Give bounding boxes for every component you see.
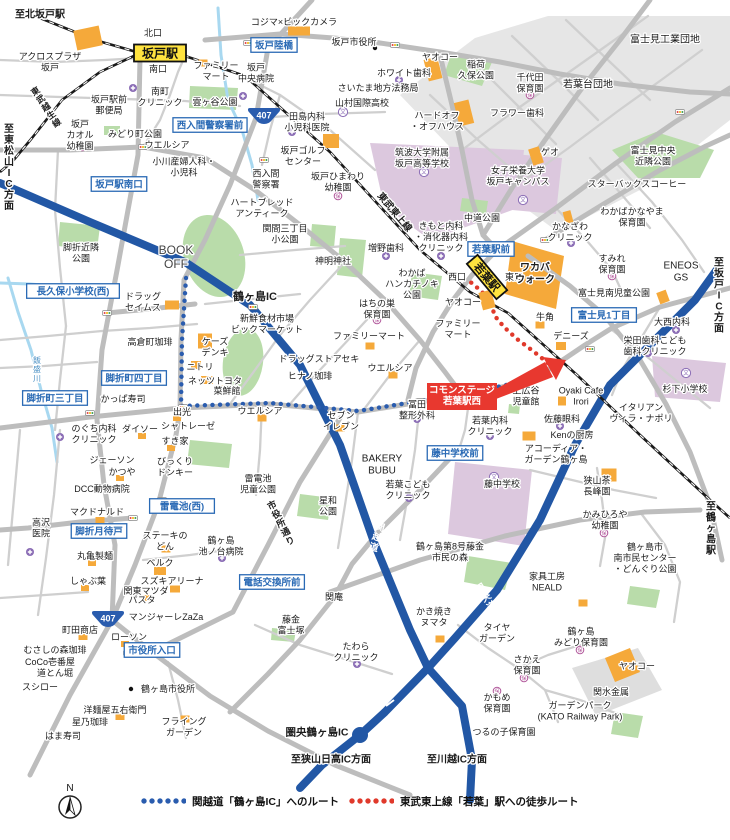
map-label: マンジャーレZaZa [129,612,204,622]
intersection-label: 電話交換所前 [243,576,301,588]
map-label: 町田商店 [62,624,98,635]
nursery-icon-glyph: 保 [521,675,526,682]
map-label: 西口 [448,272,466,282]
map-label: 千代田保育園 [516,73,543,94]
map-label: ガーデンパーク(KATO Railway Park) [538,700,623,722]
building [556,342,566,350]
map-label: 道とん堀 [37,667,73,678]
station-label-group: 坂戸駅 [134,45,186,62]
map-label: ウエルシア [237,406,282,416]
traffic-light-dot [394,44,396,46]
nursery-icon-glyph: 保 [601,530,606,537]
traffic-light-dot [134,517,136,519]
legend-route-walk: 東武東上線「若葉」駅への徒歩ルート [348,794,579,808]
map-label: 丸亀製麺 [77,550,113,561]
map-label: かき焼きヌマタ [416,607,452,628]
map-label: フラワー歯科 [490,107,544,118]
map-label: セブンイレブン [323,410,359,432]
compass-north-label: N [56,784,84,794]
intersection-label: 坂戸駅南口 [95,178,143,190]
building [536,322,545,329]
map-label: 牛角 [536,311,554,322]
map-label: 新鮮食材市場ビックマーケット [231,313,303,335]
intersection-label: 藤中学校前 [431,447,479,459]
intersection-label: 市役所入口 [128,644,176,656]
map-label: 女子栄養大学坂戸キャンパス [486,165,549,187]
map-label: ウエルシア [367,363,412,373]
traffic-light-dot [392,44,394,46]
intersection-label: 富士見1丁目 [578,309,631,321]
traffic-light-dot [245,42,247,44]
road [0,331,102,340]
intersection-label: 長久保小学校(西) [37,285,110,297]
traffic-light-dot [681,111,683,113]
map-label: ホワイト歯科 [377,67,431,78]
map-label: アコーディア・ガーデン鶴ヶ島 [524,443,587,465]
map-label: 雲ヶ谷公園 [192,97,237,107]
map-label: かなざわクリニック [547,221,592,243]
map-label: 中道公園 [464,212,500,223]
map-label: 大西内科 [654,316,690,327]
map-label: ゲオ [541,146,559,157]
route-shield-number: 407 [256,111,271,121]
map-canvas: 文文文文文保保保保保保保保保407407至北坂戸駅北口南口アクロスプラザ坂戸ファ… [0,0,730,840]
map-label: ウエルシア [144,140,189,150]
map-label: 鶴ヶ島市役所 [141,683,195,694]
station-label: 坂戸駅 [142,45,179,60]
map-label: すき家 [161,435,188,446]
traffic-light-dot [261,159,263,161]
map-label: 坂戸ゴルフセンター [280,145,325,167]
map-label: Kenの厨房 [550,429,593,440]
map-label: 田島内科小児科医院 [284,111,329,133]
map-label: ネッツトヨタ [188,376,242,386]
legend-route-walk-label: 東武東上線「若葉」駅への徒歩ルート [400,794,579,809]
map-root: 文文文文文保保保保保保保保保407407至北坂戸駅北口南口アクロスプラザ坂戸ファ… [0,0,730,840]
map-label: 鶴ヶ島池ノ台病院 [198,535,243,557]
map-label: ベルク [146,558,173,568]
map-label: 飯盛川 [33,355,41,383]
map-label: かつや [108,467,135,477]
road [8,430,20,565]
map-label: CoCo壱番屋 [25,656,75,667]
map-label: スシロー [22,682,58,692]
route-dots-blue-icon [140,797,186,805]
map-label: ケーズデンキ [201,336,228,358]
map-label: 南町クリニック [137,86,182,108]
map-label: 鶴ヶ島みどり保育園 [554,626,608,648]
traffic-light-dot [587,348,589,350]
traffic-light-dot [263,159,265,161]
building [288,27,310,36]
traffic-light-dot [677,111,679,113]
map-label: 洋麺屋五右衛門 [83,704,146,715]
map-label: ヤオコー [619,661,655,671]
map-label: 藤中学校 [484,478,520,489]
school-icon-glyph: 文 [340,108,346,116]
map-label: さいたま地方法務局 [338,82,419,93]
map-label: むさしの森珈琲 [23,644,86,655]
area [187,440,232,468]
map-label: きもと内科・消化器内科クリニック [414,220,468,253]
school-icon-glyph: 文 [421,168,427,176]
traffic-light-dot [542,239,544,241]
map-label: 若葉内科クリニック [467,415,512,437]
map-label: マクドナルド [70,507,124,517]
intersection-label: 脚折町三丁目 [26,392,83,404]
map-label: 関間三丁目小公園 [262,224,307,245]
traffic-light-dot [254,306,256,308]
map-label: 富士見中央近隣公園 [630,145,675,167]
intersection-label: 西入間警察署前 [177,119,244,131]
map-label: びっくりドンキー [157,457,193,478]
map-label: 菜鮮館 [213,385,240,396]
intersection-label: 雷電池(西) [160,500,204,512]
school-icon-glyph: 文 [683,369,689,377]
map-label: さかえ保育園 [513,655,540,676]
map-label: 佐藤眼科 [544,413,580,424]
map-label: 藤金富士塚 [277,614,304,636]
map-label: すみれ保育園 [598,254,625,275]
map-label: 増野歯科 [368,242,404,253]
building [558,397,566,406]
map-label: 若葉こどもクリニック [385,479,430,501]
map-label: 東武越生線 [28,84,63,129]
map-label: 高沢医院 [32,517,50,539]
traffic-light-dot [589,348,591,350]
traffic-light-dot [591,348,593,350]
building [523,432,536,441]
nursery-icon-glyph: 保 [577,647,582,654]
map-label: 圏央鶴ヶ島IC [286,726,349,739]
map-label: 筑波大学附属坂戸高等学校 [395,147,449,169]
map-label: 至狭山日高IC方面 [291,753,371,766]
traffic-light-dot [91,412,93,414]
map-label: かもめ保育園 [483,693,510,714]
expressway-break-icon [383,694,391,700]
traffic-light-dot [140,146,142,148]
legend-route-expressway-label: 関越道「鶴ヶ島IC」へのルート [192,794,339,809]
road [0,362,97,368]
traffic-light-dot [108,312,110,314]
intersection-label: 坂戸陸橋 [255,39,294,51]
map-label: 関水金属 [593,686,629,697]
route-dots-red-icon [348,797,394,805]
map-label: パスタ [128,595,155,605]
map-label: ドラッグセイムス [125,291,161,313]
map-label: ハートブレッドアンティーク [230,197,293,219]
map-label: みどり町公園 [108,129,162,139]
map-label: イタリアンヴィラ・ナポリ [609,403,672,424]
map-label: 至鶴ヶ島駅 [705,501,717,557]
building [436,636,445,643]
map-label: わかばかなやま保育園 [600,207,663,228]
area [627,586,660,608]
road [55,326,66,430]
map-label: 家具工房NEALD [529,571,565,593]
traffic-light-dot [132,517,134,519]
traffic-light-dot [252,306,254,308]
intersection-label: 脚折月待戸 [75,525,123,537]
map-label: 富士見南児童公園 [578,287,650,298]
map-label: 坂戸カオル幼稚園 [66,119,93,151]
map-label: 小川産婦人科・小児科 [152,156,215,178]
map-label: ニトリ [186,362,213,372]
map-label: デニーズ [553,330,589,341]
nursery-icon-glyph: 保 [335,193,340,200]
traffic-light-dot [130,517,132,519]
map-label: フライングガーデン [161,716,206,738]
map-label: 若葉台団地 [563,78,613,91]
map-label: 狭山茶長峰園 [583,475,610,497]
map-label: 高倉町珈琲 [127,336,172,347]
building [170,586,180,593]
map-label: ジェーソン [89,455,134,465]
map-label: 至川越IC方面 [427,753,487,766]
map-label: シャトレーゼ [161,420,215,431]
map-label: 坂戸市役所 [331,36,376,47]
map-label: 星和公園 [319,496,337,517]
map-label: 坂戸駅前郵便局 [91,94,127,116]
building [73,26,103,51]
map-label: 北口 [144,28,162,38]
map-label: ハードオフ・オフハウス [410,111,464,132]
traffic-light-dot [250,306,252,308]
map-label: ヒナノ珈琲 [288,370,333,381]
map-label: 出光 [173,406,191,417]
map-label: はま寿司 [45,730,81,741]
map-label: DCC動物病院 [74,483,130,494]
map-label: 西入間警察署 [252,169,279,190]
map-label: 関庵 [325,591,343,602]
map-label: 至東松山IC方面 [4,123,14,212]
map-label: スターバックスコーヒー [588,179,687,189]
map-label: はちの巣保育園 [359,298,395,320]
map-label: つるの子保育園 [472,726,535,737]
building [165,301,179,310]
traffic-light-dot [106,312,108,314]
traffic-light-dot [247,42,249,44]
traffic-light-dot [89,412,91,414]
traffic-light-dot [265,159,267,161]
map-label: 坂戸中央病院 [238,63,274,84]
map-label: ダイソー [122,423,158,434]
map-label: 鶴ヶ島IC [233,289,277,303]
map-label: ヤオコー [422,52,458,62]
traffic-light-dot [104,312,106,314]
map-label: ファミリーマート [435,319,480,340]
compass-icon: N [56,784,84,825]
route-shield-number: 407 [100,614,115,624]
road [0,592,88,598]
map-label: 南口 [149,63,167,74]
map-label: ドラッグストアセキ [279,353,360,364]
map-label: 鶴ヶ島市南市民センター・どんぐり公園 [613,541,676,574]
map-label: 神明神社 [315,255,351,266]
building [579,600,588,607]
cityhall-dot-icon [129,687,133,691]
map-label: 脚折近隣公園 [63,242,99,264]
traffic-light-dot [544,239,546,241]
intersection-label: 脚折町四丁目 [105,372,162,384]
map-label: 星乃珈琲 [72,716,108,727]
map-label: しゃぶ葉 [70,575,106,586]
map-label: かっぱ寿司 [100,393,145,404]
legend-route-expressway: 関越道「鶴ヶ島IC」へのルート [140,794,339,808]
map-label: スズキアリーナ [140,575,203,586]
map-label: ENEOSGS [663,261,698,284]
compass-needle-icon [57,794,83,820]
map-label: のぐち内科クリニック [71,423,116,445]
map-label: 雷電池児童公園 [240,473,276,495]
map-label: たわらクリニック [333,642,378,663]
ic-circle-icon [352,727,368,743]
map-label: 山村国際高校 [335,97,389,108]
intersection-label: 若葉駅前 [471,243,511,255]
map-label: ヤオコー [445,297,481,307]
map-label: コジマ×ビックカメラ [251,17,337,27]
building [96,517,105,523]
map-label: 至坂戸IC方面 [714,257,725,335]
traffic-light-dot [679,111,681,113]
map-label: タイヤガーデン [479,623,515,644]
school-icon-glyph: 文 [520,196,526,204]
building [656,290,670,305]
map-label: ローソン [111,632,147,642]
map-label: BAKERYBUBU [362,454,403,477]
map-label: 栄田歯科こども歯科クリニック [623,335,686,357]
map-label: 杉下小学校 [662,383,707,394]
map-label: ファミリーマート [333,331,405,341]
map-label: ステーキのどん [142,531,187,552]
building [366,343,375,350]
building [154,567,166,575]
map-label: 至北坂戸駅 [15,8,66,21]
traffic-light-dot [396,44,398,46]
traffic-light-dot [87,412,89,414]
map-label: 富士見工業団地 [630,33,700,46]
